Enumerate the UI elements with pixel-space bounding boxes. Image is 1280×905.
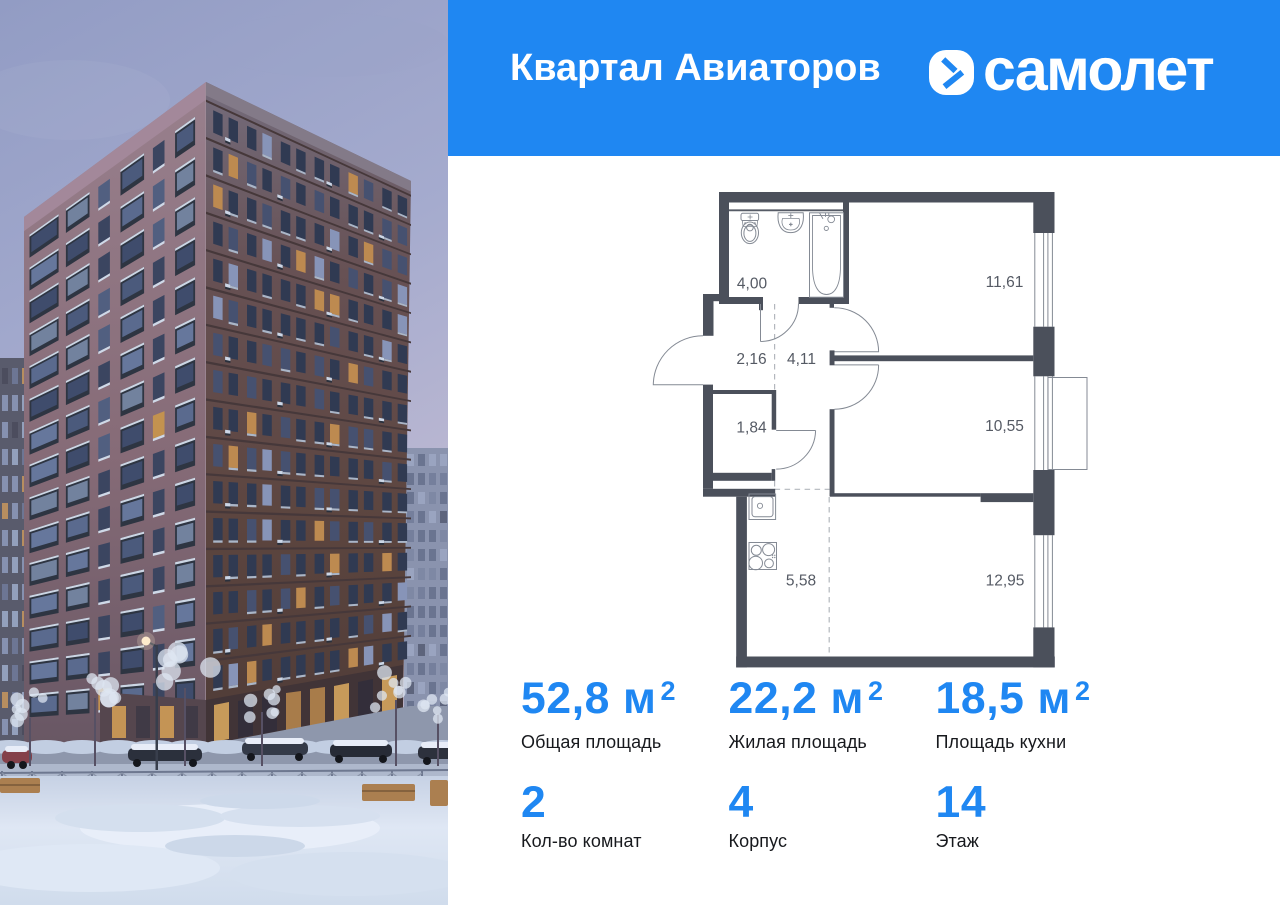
svg-text:10,55: 10,55 bbox=[985, 418, 1024, 435]
svg-text:1,84: 1,84 bbox=[736, 419, 767, 436]
svg-text:4,11: 4,11 bbox=[787, 351, 816, 368]
svg-text:5,58: 5,58 bbox=[786, 573, 816, 590]
svg-text:2,16: 2,16 bbox=[736, 351, 766, 368]
svg-text:11,61: 11,61 bbox=[986, 274, 1024, 291]
svg-text:12,95: 12,95 bbox=[986, 572, 1025, 589]
svg-text:4,00: 4,00 bbox=[737, 276, 768, 293]
